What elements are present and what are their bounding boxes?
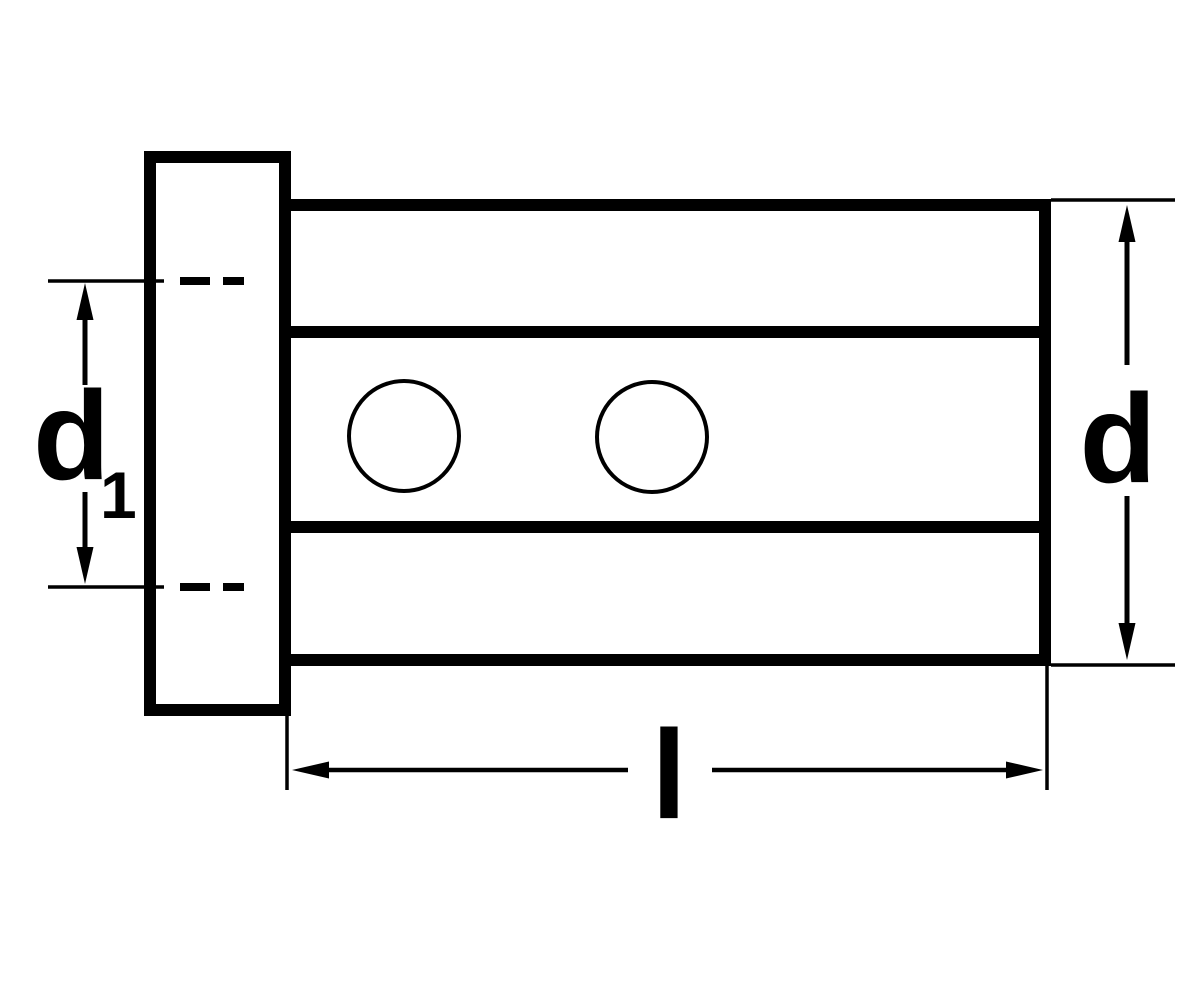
l-label: l [651,704,686,845]
technical-drawing-canvas: d 1 d l [0,0,1200,1000]
body-outline [285,205,1045,660]
d1-arrowhead-up-icon [77,283,94,320]
l-arrowhead-right-icon [1006,762,1043,779]
d-label: d [1080,368,1157,509]
d1-label-subscript: 1 [100,458,137,532]
d1-label: d [33,365,110,506]
d-arrowhead-down-icon [1119,623,1136,660]
d-arrowhead-up-icon [1119,205,1136,242]
l-arrowhead-left-icon [292,762,329,779]
flange-outline [150,157,285,710]
d1-arrowhead-down-icon [77,547,94,584]
bushing-diagram: d 1 d l [0,0,1200,1000]
